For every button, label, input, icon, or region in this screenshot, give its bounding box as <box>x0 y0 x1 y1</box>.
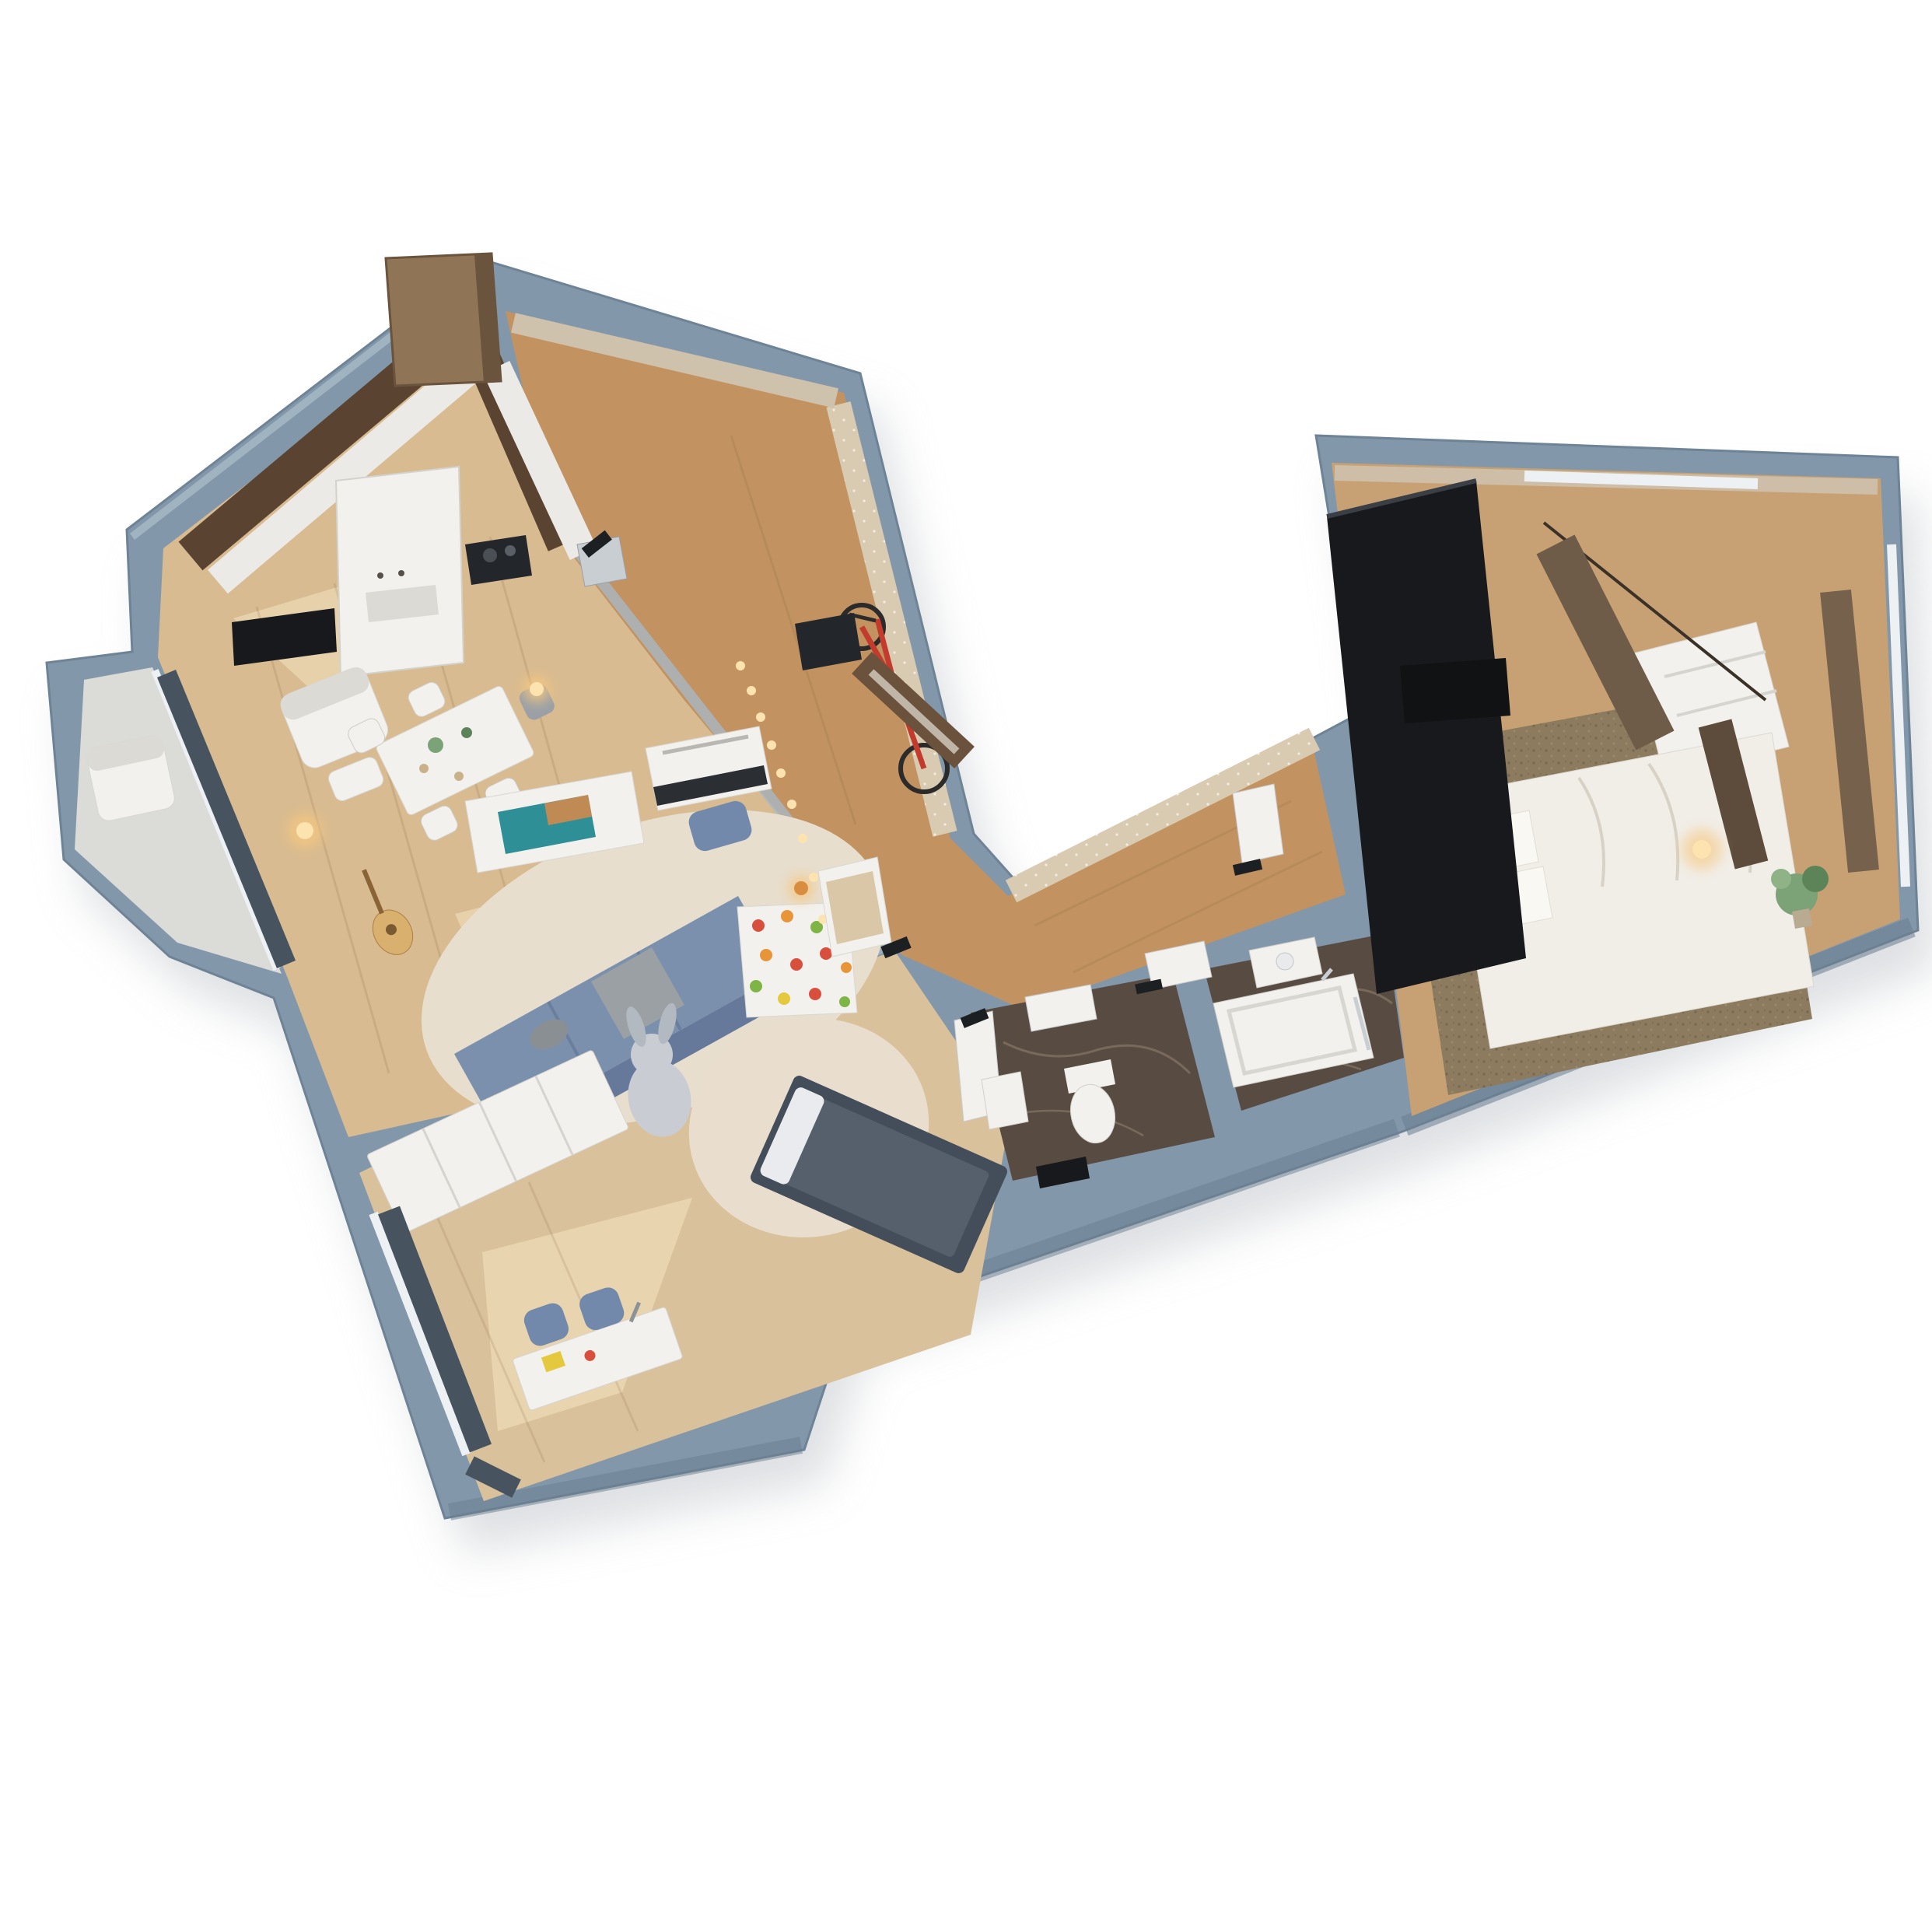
oven-knob <box>377 572 383 579</box>
hold <box>752 919 765 932</box>
hold <box>790 958 803 971</box>
hold <box>820 947 832 960</box>
amber-pendant <box>794 881 808 895</box>
pot <box>505 545 516 556</box>
oven-knob <box>398 570 404 576</box>
plant-foliage <box>1802 866 1829 892</box>
bulb <box>809 873 818 882</box>
bedside-lamp <box>1692 840 1711 859</box>
floor-lamp <box>296 822 313 839</box>
table-plant <box>428 737 443 753</box>
bulb <box>776 768 786 778</box>
bulb <box>787 800 796 809</box>
bedroom-wall-niche <box>1400 658 1510 723</box>
bulb <box>798 834 807 843</box>
hold <box>750 980 762 992</box>
bulb <box>747 686 756 695</box>
wc-sink-cabinet <box>982 1072 1028 1129</box>
bedroom-window-north <box>1524 476 1758 484</box>
table-plant <box>461 727 472 738</box>
hold <box>781 910 793 922</box>
basin <box>1276 953 1293 970</box>
hold <box>760 949 772 961</box>
hold <box>778 992 790 1005</box>
plant-foliage <box>1771 869 1791 889</box>
bulb <box>756 712 765 722</box>
table-bowl <box>419 764 429 773</box>
table-bowl <box>454 772 464 781</box>
plant-pot <box>1792 908 1812 929</box>
hold <box>841 962 852 973</box>
pot <box>483 548 497 562</box>
bulb <box>736 661 745 670</box>
pendant-lamp <box>530 682 544 696</box>
hold <box>839 996 850 1007</box>
floor-plan-3d-render <box>0 0 1932 1932</box>
bulb <box>767 740 776 750</box>
hold <box>809 988 821 1000</box>
bedroom-door <box>1233 784 1283 863</box>
floor-plan-stage <box>0 0 1932 1932</box>
